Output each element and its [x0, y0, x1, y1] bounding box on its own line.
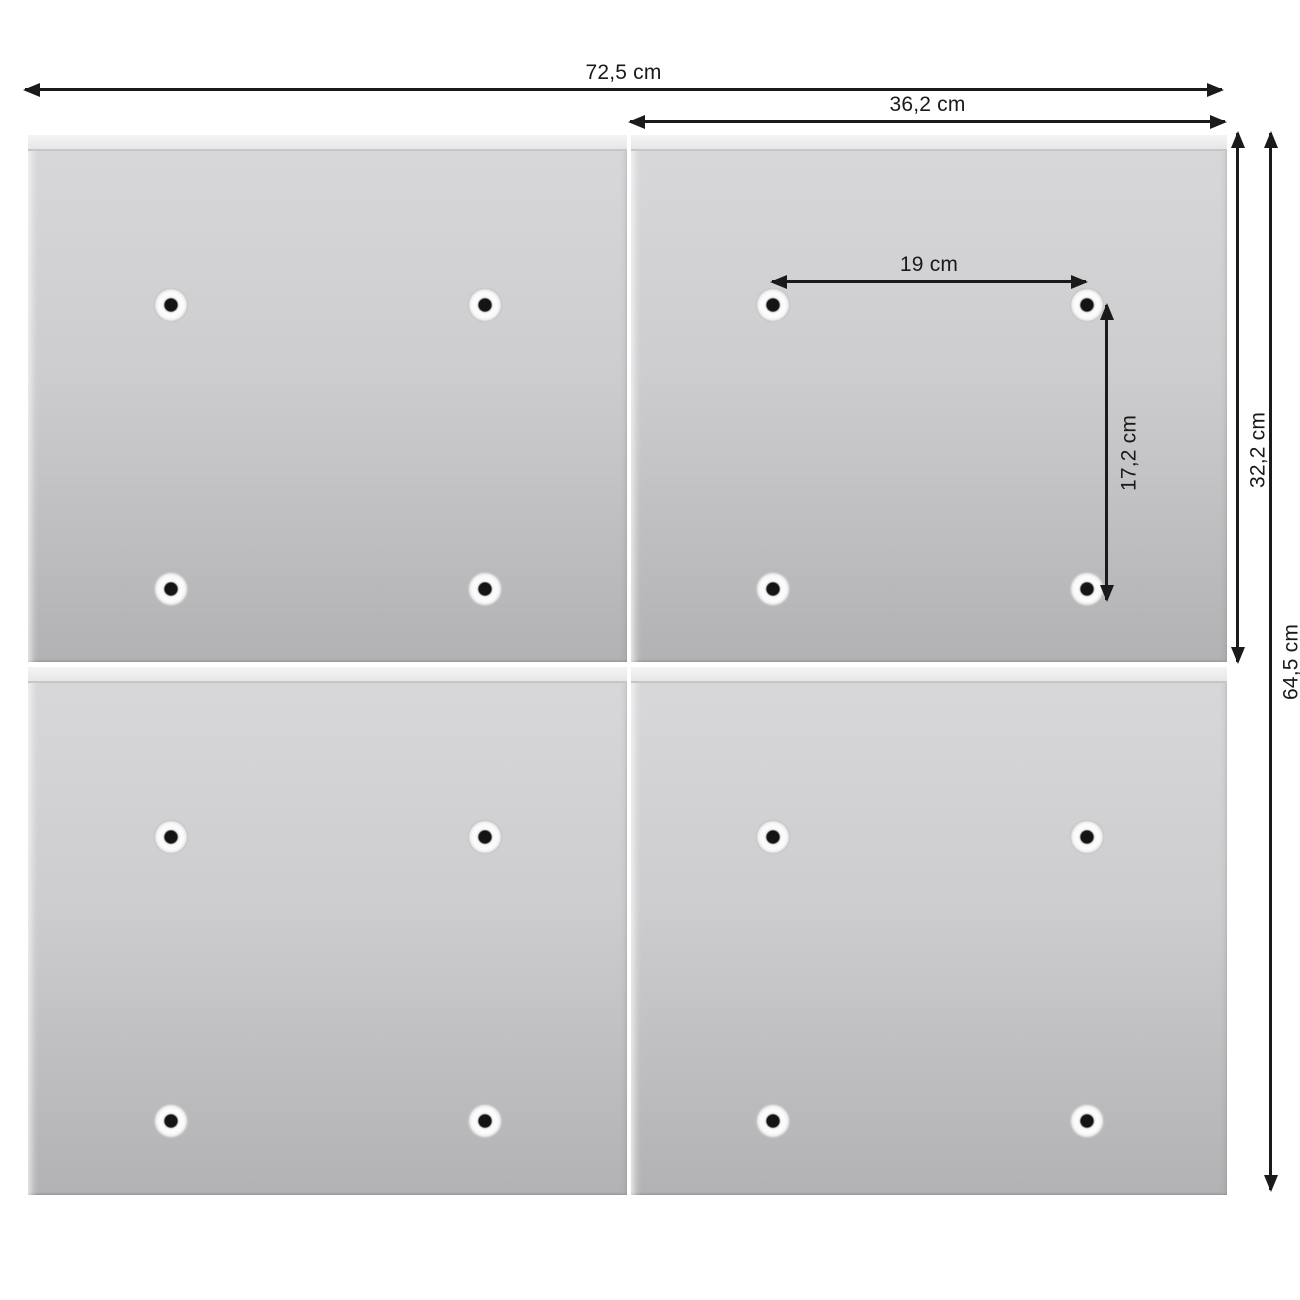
arrowhead-down-icon — [1100, 585, 1114, 602]
arrowhead-left-icon — [770, 275, 787, 289]
mounting-hole — [755, 1103, 791, 1139]
arrowhead-left-icon — [628, 115, 645, 129]
dimension-label-panel-height: 32,2 cm — [1247, 411, 1268, 487]
mounting-hole — [467, 287, 503, 323]
panel-top-right — [631, 135, 1227, 662]
product-dimension-diagram: 72,5 cm 36,2 cm 19 cm 17,2 cm 32,2 cm 64… — [0, 0, 1300, 1300]
mounting-hole — [153, 1103, 189, 1139]
arrowhead-up-icon — [1264, 131, 1278, 148]
arrowhead-left-icon — [23, 83, 40, 97]
mounting-hole — [467, 1103, 503, 1139]
dimension-hole-spacing-vertical: 17,2 cm — [1105, 305, 1108, 600]
dimension-panel-width: 36,2 cm — [630, 120, 1225, 123]
dimension-hole-spacing-horizontal: 19 cm — [772, 280, 1086, 283]
arrowhead-up-icon — [1100, 303, 1114, 320]
dimension-panel-height: 32,2 cm — [1236, 133, 1239, 662]
mounting-hole — [467, 571, 503, 607]
arrowhead-up-icon — [1231, 131, 1245, 148]
arrowhead-down-icon — [1231, 647, 1245, 664]
panel-top-edge — [631, 135, 1227, 151]
dimension-label-total-width: 72,5 cm — [585, 62, 661, 83]
mounting-hole — [467, 819, 503, 855]
panel-bottom-right — [631, 667, 1227, 1195]
dimension-total-height: 64,5 cm — [1269, 133, 1272, 1190]
mounting-hole — [153, 819, 189, 855]
panel-top-edge — [28, 135, 627, 151]
mounting-hole — [755, 571, 791, 607]
arrowhead-down-icon — [1264, 1175, 1278, 1192]
dimension-label-total-height: 64,5 cm — [1280, 623, 1300, 699]
arrowhead-right-icon — [1207, 83, 1224, 97]
dimension-label-hole-spacing-horizontal: 19 cm — [900, 254, 958, 275]
dimension-label-hole-spacing-vertical: 17,2 cm — [1118, 414, 1139, 490]
panel-top-left — [28, 135, 627, 662]
dimension-label-panel-width: 36,2 cm — [889, 94, 965, 115]
panel-bottom-left — [28, 667, 627, 1195]
mounting-hole — [153, 287, 189, 323]
mounting-hole — [755, 819, 791, 855]
arrowhead-right-icon — [1210, 115, 1227, 129]
mounting-hole — [153, 571, 189, 607]
mounting-hole — [1069, 1103, 1105, 1139]
mounting-hole — [755, 287, 791, 323]
mounting-hole — [1069, 819, 1105, 855]
dimension-total-width: 72,5 cm — [25, 88, 1222, 91]
panel-top-edge — [631, 667, 1227, 683]
arrowhead-right-icon — [1071, 275, 1088, 289]
panel-top-edge — [28, 667, 627, 683]
